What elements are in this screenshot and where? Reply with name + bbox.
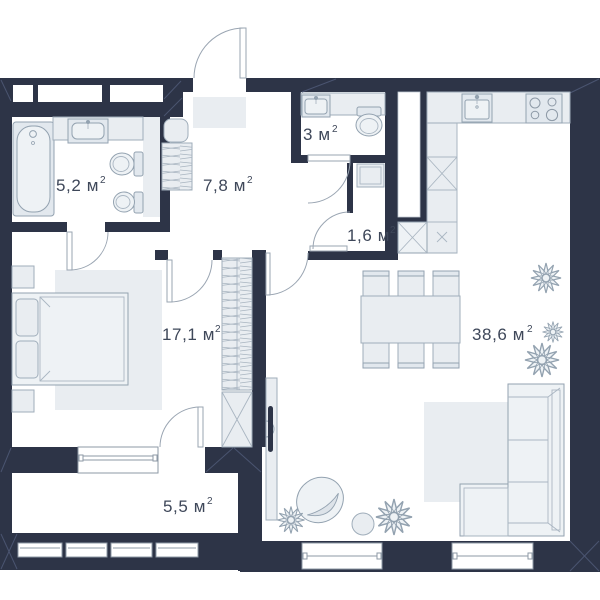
bathroom-door (67, 232, 108, 270)
washing-machine (357, 164, 384, 187)
plant-icon (376, 499, 412, 535)
living-area-label: 38,6 м (472, 325, 525, 344)
dining-table (361, 296, 460, 343)
storage-door (310, 212, 350, 251)
plant-icon (525, 343, 559, 377)
dining-chair (363, 340, 389, 368)
living-window-right (452, 543, 533, 569)
hallway-area-sup: 2 (247, 175, 253, 186)
wc-sink (302, 95, 330, 117)
hallway-pouf (164, 119, 188, 142)
bathroom-area-sup: 2 (100, 175, 106, 186)
wc-door (308, 155, 350, 203)
dining-chair (398, 271, 424, 299)
bathroom-washbasin (53, 117, 143, 143)
bedroom-balcony-window (78, 447, 158, 473)
stove (526, 94, 562, 123)
bedroom-door (167, 260, 212, 302)
floor-plan: 5,2 м 2 7,8 м 2 3 м 2 1,6 м 2 17,1 м 2 3… (0, 0, 600, 600)
side-stool (352, 513, 374, 535)
storage-area-label: 1,6 м (347, 226, 390, 245)
balcony-area-label: 5,5 м (163, 497, 206, 516)
balcony-door (160, 407, 203, 447)
bedroom-area-label: 17,1 м (162, 325, 215, 344)
entrance-mat (193, 97, 246, 128)
dining-chair (433, 271, 459, 299)
bedroom-cabinet (222, 392, 252, 447)
entrance-door (194, 28, 246, 78)
bathroom-toilet (110, 152, 143, 176)
bed (12, 293, 128, 385)
balcony-area-sup: 2 (207, 496, 213, 507)
dining-chair (363, 271, 389, 299)
dining-chair (398, 340, 424, 368)
wc-area-sup: 2 (332, 124, 338, 135)
dining-chair (433, 340, 459, 368)
living-area-sup: 2 (527, 324, 533, 335)
plant-icon (531, 263, 561, 293)
storage-area-sup: 2 (390, 225, 396, 236)
sofa (508, 384, 564, 536)
nightstand-bottom (12, 390, 34, 412)
hallway-shoe-cabinet (162, 143, 192, 190)
wc-toilet (356, 107, 382, 136)
bedroom-area-sup: 2 (215, 324, 221, 335)
living-door (266, 253, 308, 295)
bathroom-area-label: 5,2 м (56, 176, 99, 195)
bathtub (13, 122, 54, 216)
bathroom-ledge (143, 117, 160, 217)
wc-area-label: 3 м (303, 125, 331, 144)
living-window-left (302, 543, 382, 569)
sofa-ottoman (460, 484, 508, 536)
plant-icon (543, 322, 564, 343)
kitchen-sink (462, 94, 492, 122)
hallway-area-label: 7,8 м (203, 176, 246, 195)
bathroom-bidet (114, 192, 144, 213)
floor-plan-canvas: 5,2 м 2 7,8 м 2 3 м 2 1,6 м 2 17,1 м 2 3… (0, 0, 600, 600)
wardrobe (222, 258, 252, 390)
nightstand-top (12, 266, 34, 288)
